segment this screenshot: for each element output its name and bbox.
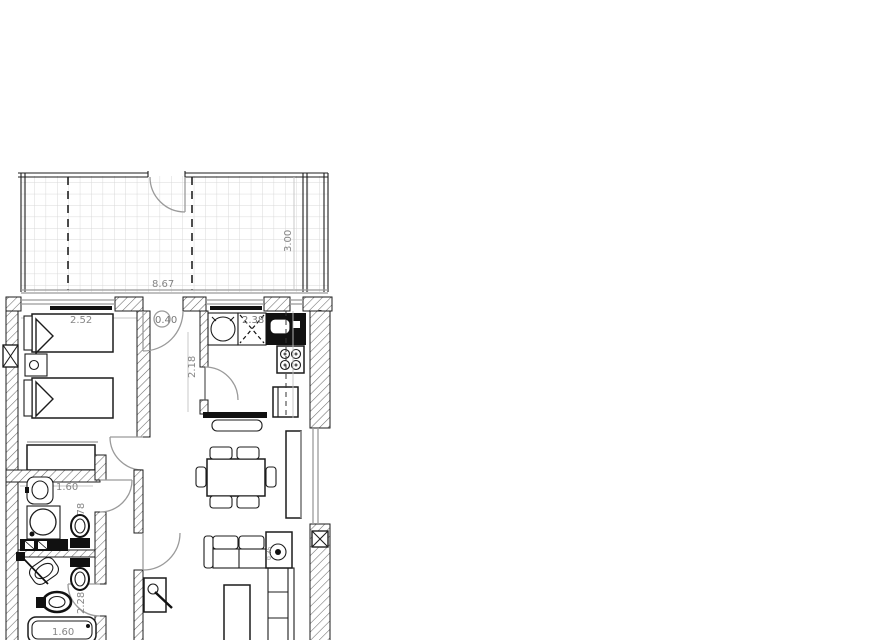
bedroom-bath-wall — [6, 470, 100, 482]
kitchen-counter-bar — [203, 412, 267, 418]
floor-plan-drawing: 8.67 3.00 — [0, 0, 880, 640]
chair — [210, 447, 232, 459]
bed-2 — [24, 378, 113, 418]
vanity-unit — [20, 539, 68, 551]
bath-divider-wall — [18, 550, 95, 557]
wall-pier — [303, 297, 332, 311]
bath-hall-wall — [95, 455, 106, 480]
chair — [237, 447, 259, 459]
page-background — [0, 0, 880, 640]
right-wall-vent — [312, 531, 328, 547]
toilet-icon — [70, 515, 90, 548]
kitchen-wall-upper — [200, 311, 208, 367]
terrace-tile-grid — [21, 176, 328, 292]
dim-hall-depth: 2.18 — [187, 356, 198, 378]
sofa-cushion — [239, 536, 264, 549]
terrace: 8.67 3.00 — [18, 171, 328, 293]
dim-hall-door-width: 0.40 — [155, 315, 177, 326]
headboard — [24, 380, 32, 416]
dim-terrace-width: 8.67 — [152, 279, 174, 290]
chair — [196, 467, 206, 487]
corner-table: 0.35 — [266, 532, 292, 568]
washing-machine-icon — [208, 313, 238, 345]
sofa-chaise — [268, 568, 294, 640]
headboard — [24, 316, 32, 350]
nightstand — [25, 354, 47, 376]
kitchen-wall-lower — [200, 400, 208, 414]
dim-bath1-width: 1.60 — [56, 482, 78, 493]
wall-pier — [115, 297, 143, 311]
dim-kitchen-width: 2.38 — [242, 315, 264, 326]
coffee-table — [224, 585, 250, 640]
shower-icon — [27, 506, 60, 539]
floor-plan-page: 8.67 3.00 — [0, 0, 880, 640]
chair — [266, 467, 276, 487]
stove-icon — [277, 346, 304, 373]
wardrobe — [27, 442, 98, 470]
sofa-armrest — [204, 536, 213, 568]
bench — [212, 420, 262, 431]
dim-side-table: 0.35 — [266, 546, 273, 560]
dim-bath2-depth: 2.28 — [76, 592, 87, 614]
dim-bedroom-width: 2.52 — [70, 315, 92, 326]
chair — [237, 496, 259, 508]
window-sill — [50, 306, 112, 310]
corridor-wall-upper — [134, 470, 143, 533]
sofa-cushion — [213, 536, 238, 549]
toilet-icon — [70, 558, 90, 590]
washbasin-icon — [25, 477, 53, 504]
wall-pier — [6, 297, 21, 311]
dim-terrace-depth: 3.00 — [283, 230, 294, 252]
floor-lamp-icon — [275, 549, 281, 555]
bed-1 — [24, 314, 113, 353]
glass-door-leaf — [286, 431, 301, 518]
wall-pier — [264, 297, 290, 311]
left-wall-vent — [3, 345, 18, 367]
chair — [210, 496, 232, 508]
dim-bathtub-length: 1.60 — [52, 627, 74, 638]
wall-pier — [183, 297, 206, 311]
bath-hall-wall — [95, 512, 106, 584]
window-sill — [210, 306, 262, 310]
right-exterior-wall-upper — [310, 311, 330, 428]
corridor-wall-lower — [134, 570, 143, 640]
